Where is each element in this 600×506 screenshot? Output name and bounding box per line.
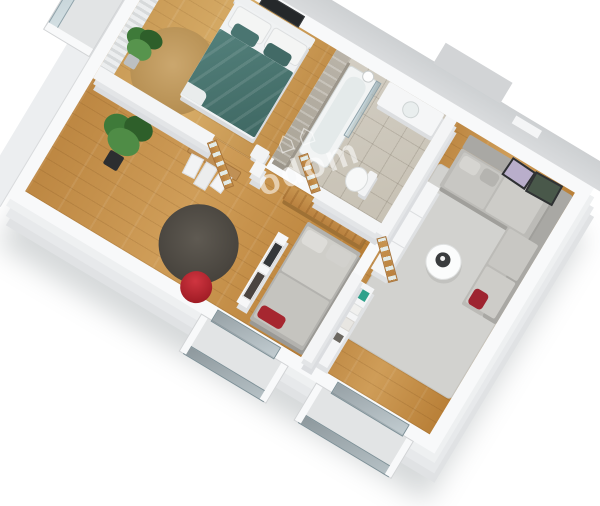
floor-plan-render: { "scene": { "type": "3d-isometric-floor… <box>0 0 600 400</box>
balcony-south-1-glass-railing <box>183 344 269 402</box>
apartment-building <box>6 0 594 454</box>
